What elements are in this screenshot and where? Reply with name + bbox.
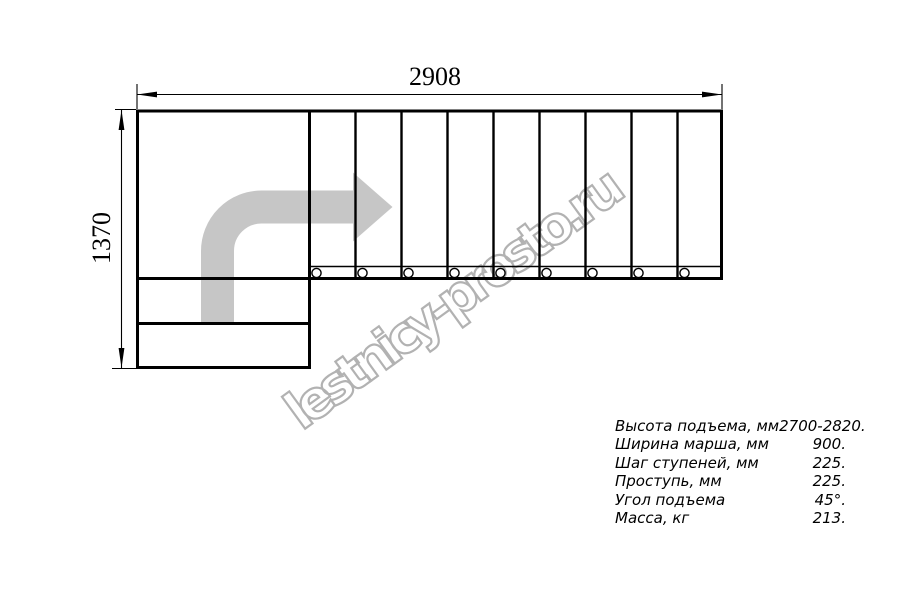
spec-value: 2700-2820. (779, 417, 866, 435)
spec-row: Масса, кг 213. (615, 509, 846, 527)
direction-arrow (218, 173, 393, 326)
spec-row: Ширина марша, мм 900. (615, 435, 846, 453)
step-divider-lines (356, 111, 678, 279)
spec-value: 900. (813, 435, 846, 453)
bolt-circle (634, 268, 643, 277)
width-dim-arrow-left-icon (137, 92, 157, 98)
spec-label: Шаг ступеней, мм (615, 454, 759, 472)
bolt-circle (496, 268, 505, 277)
spec-row: Проступь, мм 225. (615, 472, 846, 490)
spec-value: 225. (813, 454, 846, 472)
bolt-circle (404, 268, 413, 277)
spec-label: Угол подъема (615, 491, 725, 509)
spec-label: Ширина марша, мм (615, 435, 769, 453)
spec-row: Угол подъема 45°. (615, 491, 846, 509)
direction-arrow-head-icon (353, 173, 393, 242)
bolt-circle (450, 268, 459, 277)
spec-row: Высота подъема, мм 2700-2820. (615, 417, 846, 435)
bolt-circle (588, 268, 597, 277)
bolt-circle (542, 268, 551, 277)
spec-label: Высота подъема, мм (615, 417, 779, 435)
spec-value: 45°. (815, 491, 846, 509)
spec-label: Проступь, мм (615, 472, 722, 490)
spec-table: Высота подъема, мм 2700-2820. Ширина мар… (615, 417, 846, 527)
bolt-circle (358, 268, 367, 277)
spec-label: Масса, кг (615, 509, 689, 527)
bolt-circle (312, 268, 321, 277)
spec-value: 213. (813, 509, 846, 527)
spec-row: Шаг ступеней, мм 225. (615, 454, 846, 472)
height-dim-arrow-top-icon (119, 110, 125, 130)
height-dimension-label: 1370 (88, 202, 116, 274)
bolt-circle (680, 268, 689, 277)
spec-value: 225. (813, 472, 846, 490)
width-dimension-label: 2908 (404, 62, 466, 92)
height-dim-arrow-bottom-icon (119, 348, 125, 368)
stair-plan-page: lestnicy-prosto.ru (0, 0, 900, 600)
width-dim-arrow-right-icon (702, 92, 722, 98)
